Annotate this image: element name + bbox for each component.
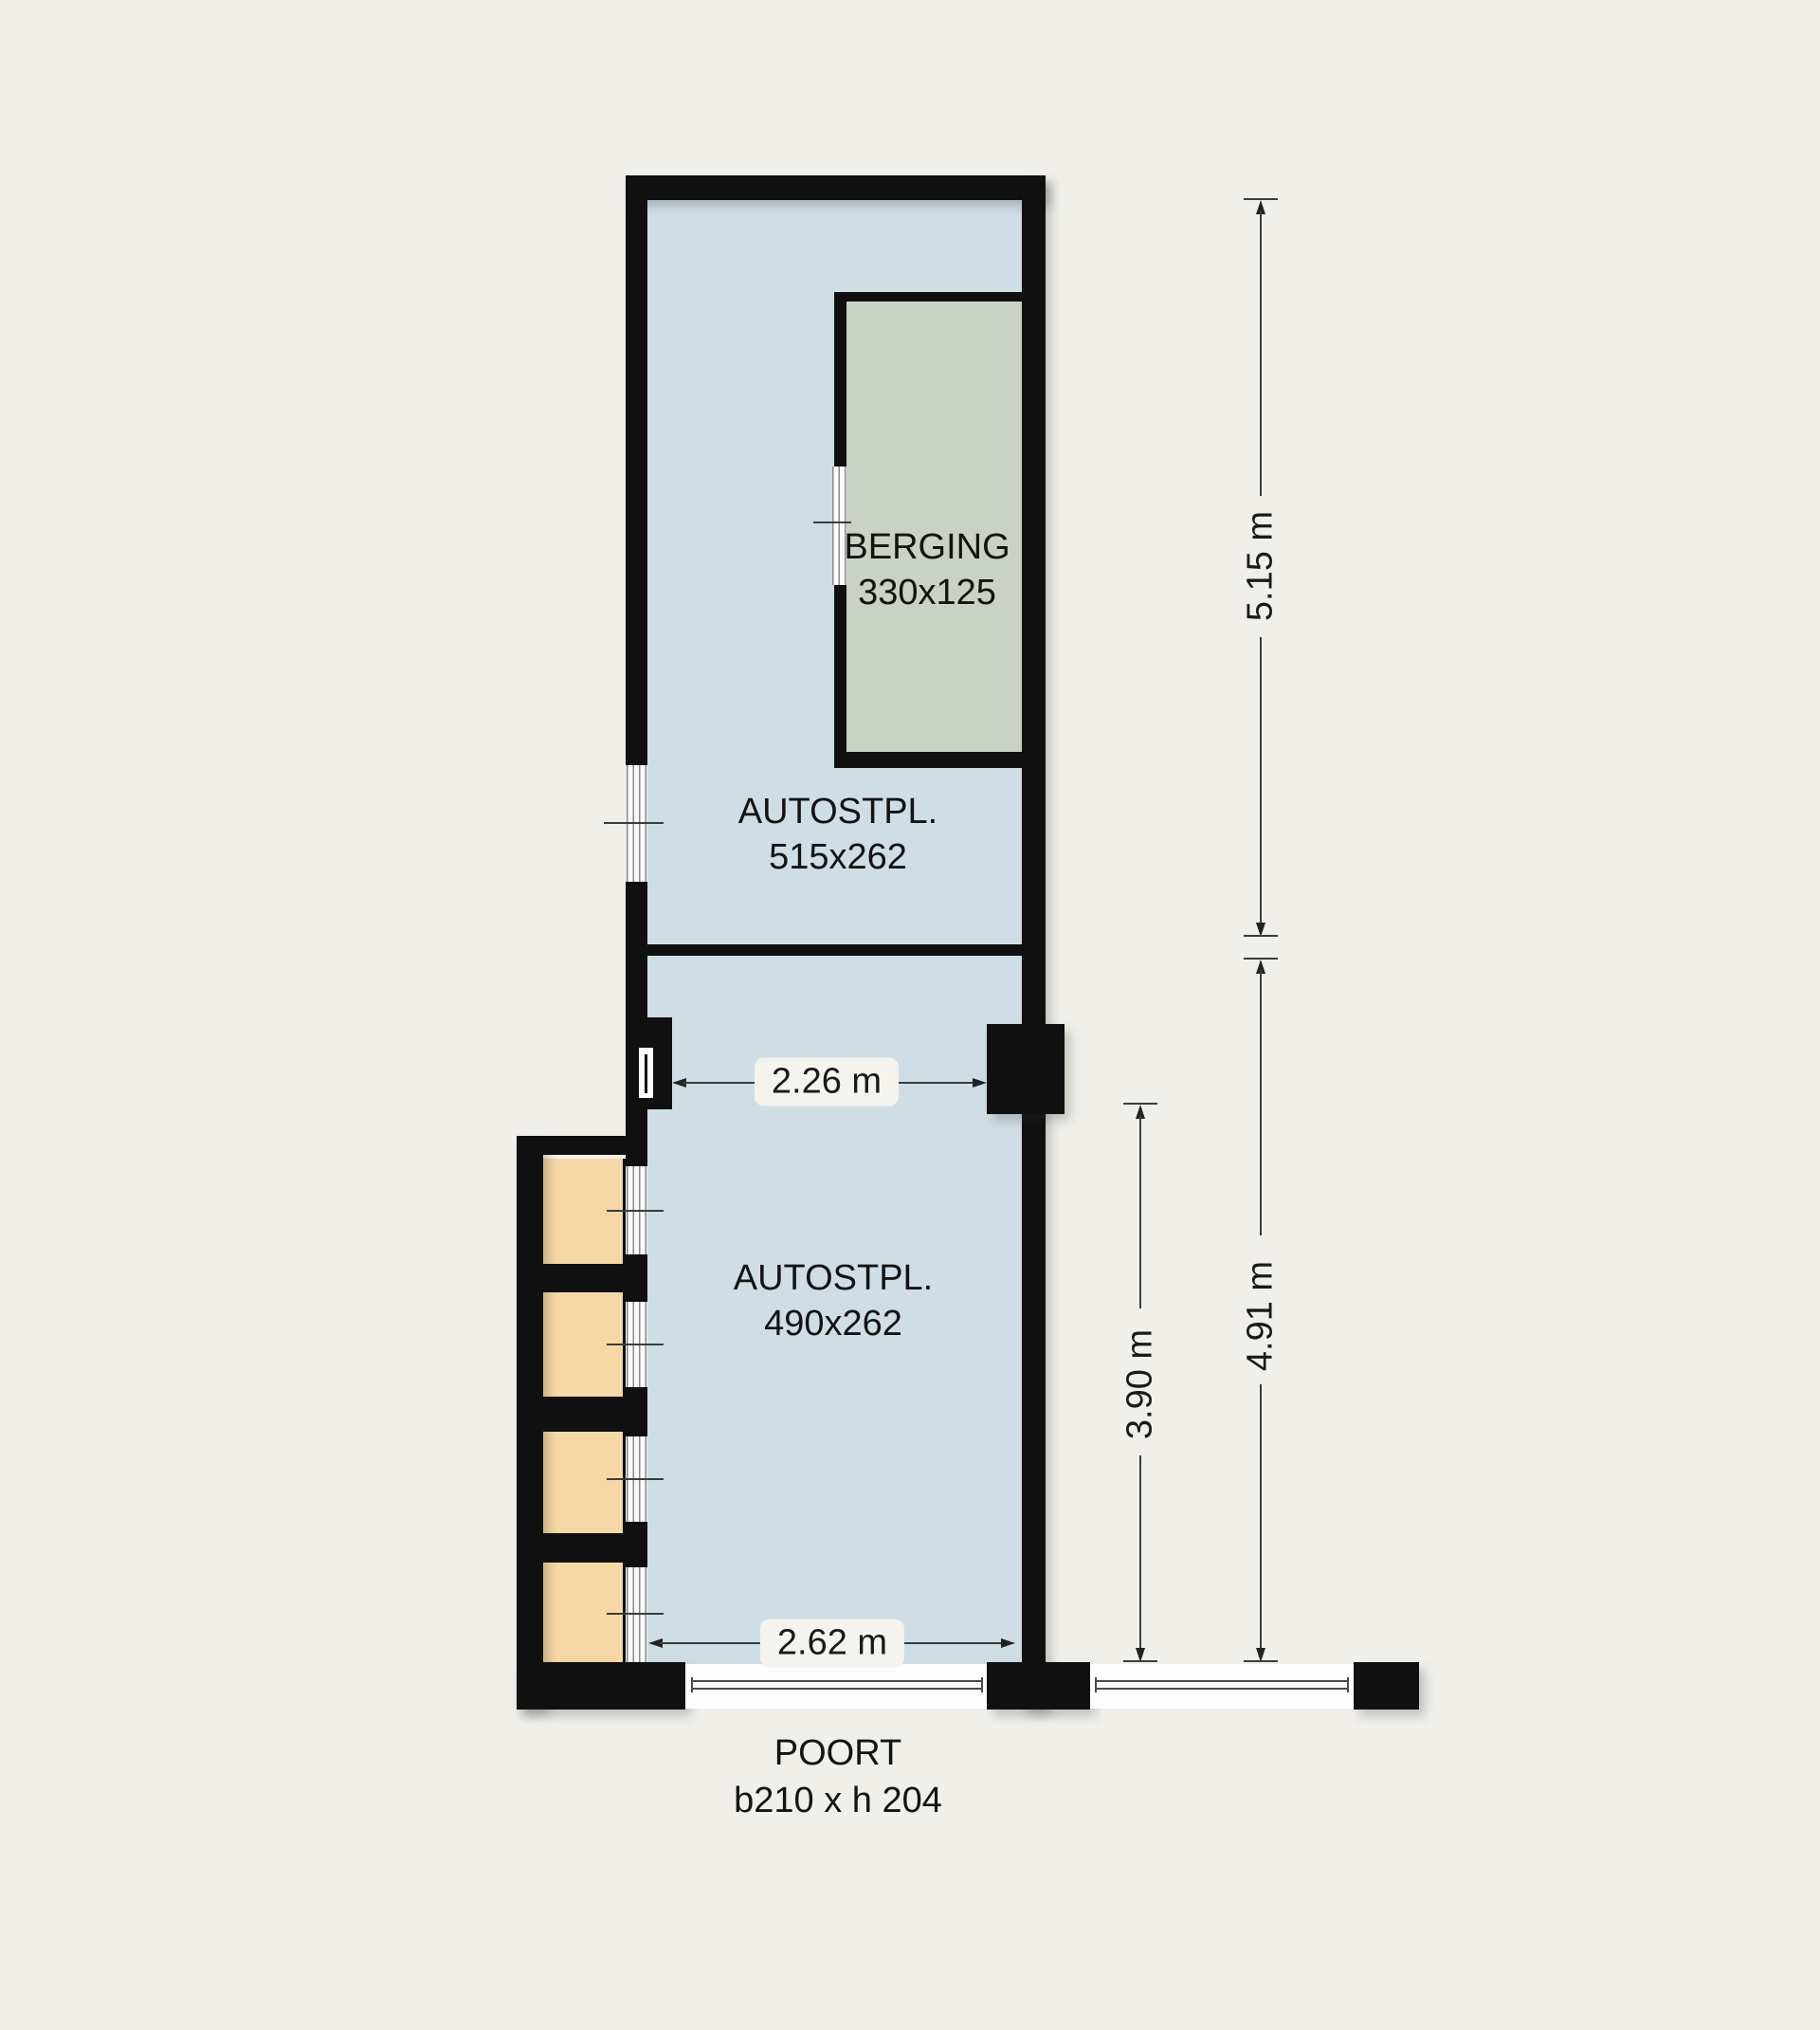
wall-left-seg	[626, 1387, 647, 1436]
autostpl-upper-size: 515x262	[738, 834, 937, 880]
gate-cap	[1347, 1677, 1349, 1692]
dim-label-262: 2.62 m	[760, 1619, 904, 1668]
floor-plan-canvas: BERGING 330x125 AUTOSTPL. 515x262 AUTOST…	[0, 0, 1820, 2030]
dim-line-390	[1139, 1455, 1141, 1650]
autostpl-lower-name: AUTOSTPL.	[734, 1255, 933, 1301]
storage-box	[543, 1432, 626, 1533]
gate-cap	[1095, 1677, 1097, 1692]
wall-annex-divider	[517, 1397, 626, 1432]
wall-annex-top	[517, 1136, 647, 1155]
wall-annex-divider	[517, 1264, 626, 1292]
door-slit-bar	[645, 1054, 647, 1093]
wall-left-upper	[626, 175, 647, 765]
poort-size: b210 x h 204	[734, 1777, 942, 1824]
gate-poort	[685, 1664, 987, 1709]
gate-leaf	[1096, 1680, 1348, 1690]
dim-line-491	[1260, 970, 1262, 1235]
sill-tick	[607, 1344, 664, 1345]
wall-berging-left-upper	[834, 292, 846, 466]
dim-tick	[1244, 935, 1278, 937]
wall-bottom-right-block	[1354, 1662, 1419, 1710]
wall-bottom-left-block	[517, 1662, 685, 1710]
berging-name: BERGING	[844, 524, 1010, 570]
dim-label-491: 4.91 m	[1241, 1252, 1282, 1381]
dim-line-515	[1260, 637, 1262, 926]
dim-tick	[1123, 1660, 1157, 1662]
window-door-box-4	[627, 1567, 646, 1662]
dim-label-390: 3.90 m	[1120, 1320, 1161, 1449]
wall-right	[1022, 175, 1046, 1710]
sill-tick	[604, 822, 664, 824]
wall-bottom-center-block	[987, 1662, 1090, 1710]
wall-top	[626, 175, 1046, 200]
dim-tick	[1244, 1660, 1278, 1662]
poort-name: POORT	[734, 1729, 942, 1777]
dim-line-515	[1260, 210, 1262, 496]
gate-cap	[691, 1677, 693, 1692]
wall-berging-bottom	[834, 752, 1022, 768]
berging-size: 330x125	[844, 570, 1010, 615]
sill-tick	[813, 521, 851, 523]
autostpl-lower-size: 490x262	[734, 1301, 933, 1346]
pillar-right	[987, 1024, 1065, 1114]
dim-arrow-right	[1001, 1638, 1015, 1648]
sill-tick	[607, 1613, 664, 1615]
dim-line-390	[1139, 1115, 1141, 1308]
wall-parking-divider	[647, 944, 1022, 956]
autostpl-upper-name: AUTOSTPL.	[738, 789, 937, 834]
dim-line-491	[1260, 1384, 1262, 1650]
label-poort: POORT b210 x h 204	[734, 1729, 942, 1824]
label-autostpl-upper: AUTOSTPL. 515x262	[738, 789, 937, 880]
sill-tick	[607, 1478, 664, 1480]
wall-annex-divider	[517, 1533, 626, 1563]
wall-left-seg	[626, 1522, 647, 1567]
wall-left-seg	[626, 1254, 647, 1302]
wall-left-mid	[626, 882, 647, 1166]
wall-berging-top	[834, 292, 1022, 302]
gate-cap	[981, 1677, 983, 1692]
gate-leaf	[692, 1680, 982, 1690]
dim-arrow-right	[973, 1078, 987, 1088]
dim-label-226: 2.26 m	[755, 1058, 899, 1106]
sill-tick	[607, 1210, 664, 1212]
label-autostpl-lower: AUTOSTPL. 490x262	[734, 1255, 933, 1346]
label-berging: BERGING 330x125	[844, 524, 1010, 615]
gate-right	[1090, 1664, 1354, 1709]
dim-label-515: 5.15 m	[1241, 502, 1282, 631]
